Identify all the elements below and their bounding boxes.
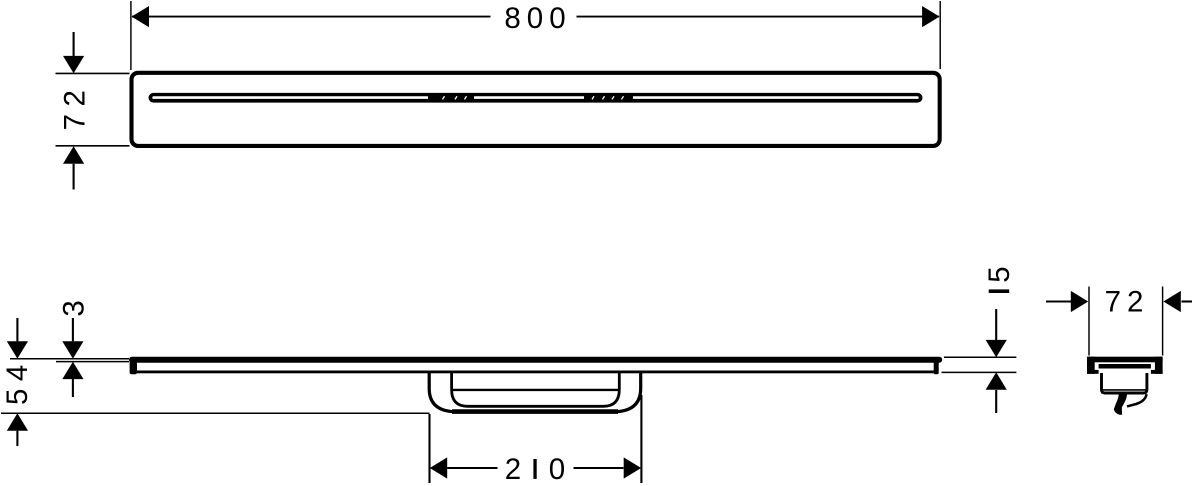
svg-text:3: 3 xyxy=(57,294,90,316)
svg-text:2: 2 xyxy=(505,453,521,486)
svg-text:800: 800 xyxy=(504,2,571,35)
svg-text:54: 54 xyxy=(1,357,34,405)
svg-text:72: 72 xyxy=(59,83,92,131)
svg-text:0: 0 xyxy=(549,453,565,486)
svg-text:72: 72 xyxy=(1105,286,1150,319)
svg-text:5: 5 xyxy=(983,266,1016,282)
